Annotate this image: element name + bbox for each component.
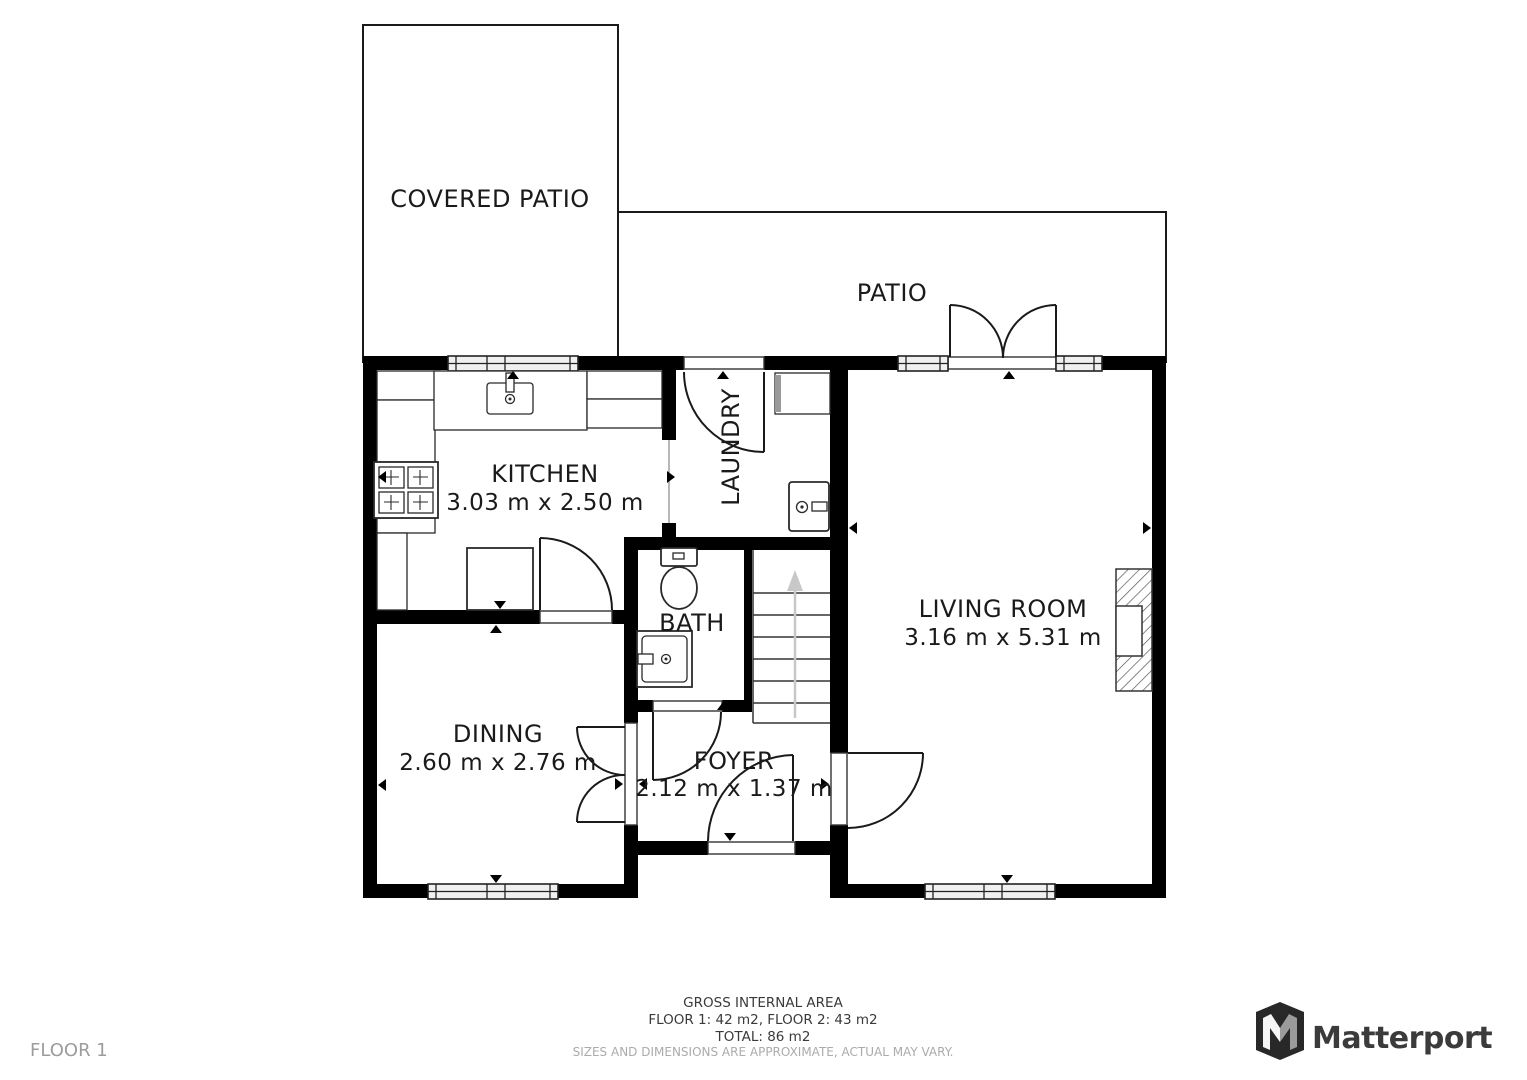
gross-internal-area-title: GROSS INTERNAL AREA xyxy=(683,995,843,1011)
floor-selector-label: FLOOR 1 xyxy=(30,1040,108,1061)
stairs-up-arrow xyxy=(787,570,803,718)
dining-dimensions: 2.60 m x 2.76 m xyxy=(399,750,597,776)
laundry-label: LAUNDRY xyxy=(717,388,745,506)
stove xyxy=(374,462,438,518)
kitchen-dimensions: 3.03 m x 2.50 m xyxy=(446,490,644,516)
floor-plan-page: COVERED PATIO PATIO KITCHEN 3.03 m x 2.5… xyxy=(0,0,1527,1080)
disclaimer-text: SIZES AND DIMENSIONS ARE APPROXIMATE, AC… xyxy=(573,1045,954,1059)
laundry-counter-edge xyxy=(775,375,781,412)
foyer-label: FOYER xyxy=(694,747,774,775)
kitchen-window xyxy=(448,356,578,371)
fireplace xyxy=(1116,569,1152,691)
staircase xyxy=(753,550,830,723)
dining-label: DINING xyxy=(453,720,543,748)
patio-label: PATIO xyxy=(857,279,928,307)
foyer-dimensions: 2.12 m x 1.37 m xyxy=(635,776,833,802)
refrigerator xyxy=(467,548,533,610)
toilet xyxy=(661,548,697,609)
matterport-logo-icon xyxy=(1256,1002,1304,1060)
floor-areas-text: FLOOR 1: 42 m2, FLOOR 2: 43 m2 xyxy=(648,1012,877,1028)
living-room-window-bottom xyxy=(925,884,1055,899)
living-room-door xyxy=(848,753,923,828)
dining-window xyxy=(428,884,558,899)
matterport-wordmark: Matterport xyxy=(1312,1021,1492,1056)
laundry-fixtures xyxy=(775,373,830,531)
bath-sink-vanity xyxy=(637,631,692,687)
bath-label: BATH xyxy=(659,609,725,637)
living-room-label: LIVING ROOM xyxy=(919,595,1088,623)
kitchen-label: KITCHEN xyxy=(491,460,599,488)
covered-patio-label: COVERED PATIO xyxy=(390,185,589,213)
living-room-window-top-left xyxy=(898,356,948,371)
area-summary: GROSS INTERNAL AREA FLOOR 1: 42 m2, FLOO… xyxy=(573,995,954,1059)
patio-french-doors xyxy=(950,305,1056,358)
total-area-text: TOTAL: 86 m2 xyxy=(715,1029,811,1045)
floor-plan-svg: COVERED PATIO PATIO KITCHEN 3.03 m x 2.5… xyxy=(0,0,1527,1080)
washing-machine xyxy=(789,482,829,531)
living-room-dimensions: 3.16 m x 5.31 m xyxy=(904,625,1102,651)
living-room-window-top-right xyxy=(1056,356,1102,371)
kitchen-door xyxy=(540,538,612,610)
matterport-logo: Matterport xyxy=(1256,1002,1492,1060)
